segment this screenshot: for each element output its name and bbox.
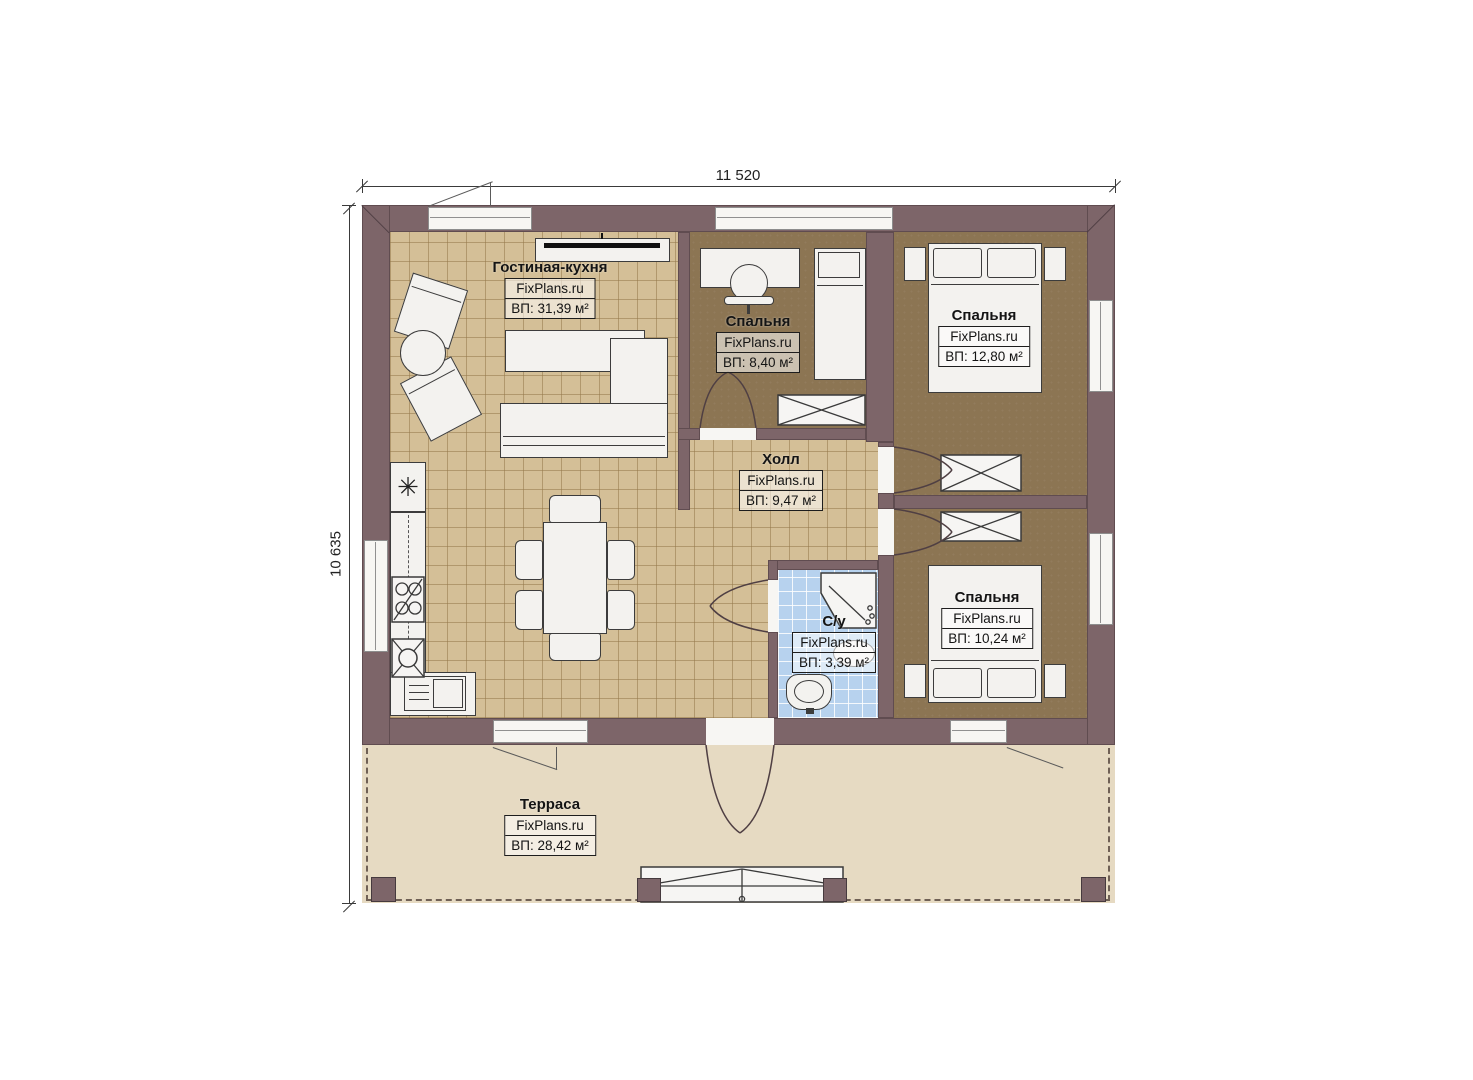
dining-chair [515,540,543,580]
room-label-terrace: Терраса FixPlans.ru ВП: 28,42 м² [504,797,596,856]
toilet-outlet [806,708,814,714]
fridge-icon: ✳ [391,463,425,511]
floor-plan: 11 520 10 635 [0,0,1473,1080]
wall-bedroom-hall-b [756,428,866,440]
door-gap-bedroom-middle [700,428,756,440]
room-area: ВП: 8,40 м² [717,353,799,372]
watermark-text: FixPlans.ru [505,279,595,299]
exterior-wall-right [1087,205,1115,745]
oven [404,676,466,711]
oven-window [433,679,463,708]
wall-bedrooms-vertical-thick [866,232,894,442]
window-bedroom3-bottom [950,720,1007,743]
office-chair-back [724,296,774,305]
door-gap-bedroom2 [878,447,894,493]
room-name: Холл [739,452,823,468]
pillow [818,252,860,278]
watermark-box: FixPlans.ru ВП: 9,47 м² [739,470,823,511]
watermark-text: FixPlans.ru [740,471,822,491]
pillow [933,668,982,698]
dimension-left-label: 10 635 [328,531,345,577]
nightstand [904,247,926,281]
wall-bathroom-left-a [768,560,778,580]
exterior-wall-left [362,205,390,745]
watermark-text: FixPlans.ru [717,333,799,353]
room-area: ВП: 31,39 м² [505,299,595,318]
watermark-box: FixPlans.ru ВП: 3,39 м² [792,632,876,673]
nightstand [904,664,926,698]
dining-chair [607,590,635,630]
room-label-bedroom-bottomright: Спальня FixPlans.ru ВП: 10,24 м² [941,590,1033,649]
room-label-bedroom-topright: Спальня FixPlans.ru ВП: 12,80 м² [938,308,1030,367]
door-gap-terrace [706,718,774,745]
room-area: ВП: 3,39 м² [793,653,875,672]
wall-bathroom-top [768,560,878,570]
window-sash-topleft-end [490,182,491,206]
room-name: Спальня [938,308,1030,324]
terrace-post [371,877,396,902]
wall-living-bedroom [678,232,690,510]
tv-screen [544,243,660,248]
pillow [987,668,1036,698]
room-name: Гостиная-кухня [493,260,608,276]
window-bedroom2-right [1089,300,1113,392]
door-arc-bedroom-middle [700,372,756,428]
room-label-bathroom: С/у FixPlans.ru ВП: 3,39 м² [792,614,876,673]
window-bedroom3-right [1089,533,1113,625]
dimension-top-label: 11 520 [700,167,776,184]
watermark-box: FixPlans.ru ВП: 12,80 м² [938,326,1030,367]
nightstand [1044,247,1066,281]
wall-hall-right-b [878,493,894,509]
watermark-text: FixPlans.ru [942,609,1032,629]
room-area: ВП: 28,42 м² [505,836,595,855]
dining-chair [515,590,543,630]
door-arc-bedroom3 [894,509,952,555]
room-label-living: Гостиная-кухня FixPlans.ru ВП: 31,39 м² [493,260,608,319]
window-bedroom-top [715,207,893,230]
wall-bathroom-left-b [768,632,778,718]
pillow [987,248,1036,278]
room-name: Спальня [716,314,800,330]
dining-table [543,522,607,634]
terrace-steps [640,866,844,903]
wardrobe [940,511,1022,542]
wall-bedroom-hall-a [678,428,700,440]
window-living-bottom [493,720,588,743]
tv-mount [601,233,603,239]
nightstand [1044,664,1066,698]
terrace-post [637,878,661,902]
door-gap-bathroom [768,580,778,632]
single-bed [814,248,866,380]
room-label-bedroom-middle: Спальня FixPlans.ru ВП: 8,40 м² [716,314,800,373]
room-name: Спальня [941,590,1033,606]
window-kitchen-left [364,540,388,652]
window-living-top [428,207,532,230]
dining-chair [607,540,635,580]
toilet-bowl [794,680,824,703]
door-arc-bedroom2 [894,447,952,493]
room-area: ВП: 12,80 м² [939,347,1029,366]
kitchen-sink [391,638,425,678]
terrace-post [1081,877,1106,902]
watermark-text: FixPlans.ru [939,327,1029,347]
door-arc-bathroom [710,580,768,632]
toilet [786,674,832,710]
window-sash-bottomleft-end [556,747,557,769]
room-area: ВП: 9,47 м² [740,491,822,510]
wardrobe [777,394,866,426]
door-arc-terrace [706,745,774,833]
dining-chair [549,633,601,661]
wall-hall-right-c [878,555,894,718]
watermark-text: FixPlans.ru [793,633,875,653]
fridge: ✳ [390,462,426,512]
sofa [500,403,668,458]
wall-between-right-bedrooms [894,495,1087,509]
watermark-box: FixPlans.ru ВП: 31,39 м² [504,278,596,319]
dining-chair [549,495,601,523]
cooktop [391,576,425,623]
room-name: Терраса [504,797,596,813]
watermark-text: FixPlans.ru [505,816,595,836]
watermark-box: FixPlans.ru ВП: 8,40 м² [716,332,800,373]
terrace-post [823,878,847,902]
room-name: С/у [792,614,876,630]
wardrobe [940,454,1022,492]
watermark-box: FixPlans.ru ВП: 10,24 м² [941,608,1033,649]
watermark-box: FixPlans.ru ВП: 28,42 м² [504,815,596,856]
room-area: ВП: 10,24 м² [942,629,1032,648]
room-label-hall: Холл FixPlans.ru ВП: 9,47 м² [739,452,823,511]
door-gap-bedroom3 [878,509,894,555]
pillow [933,248,982,278]
side-table [400,330,446,376]
